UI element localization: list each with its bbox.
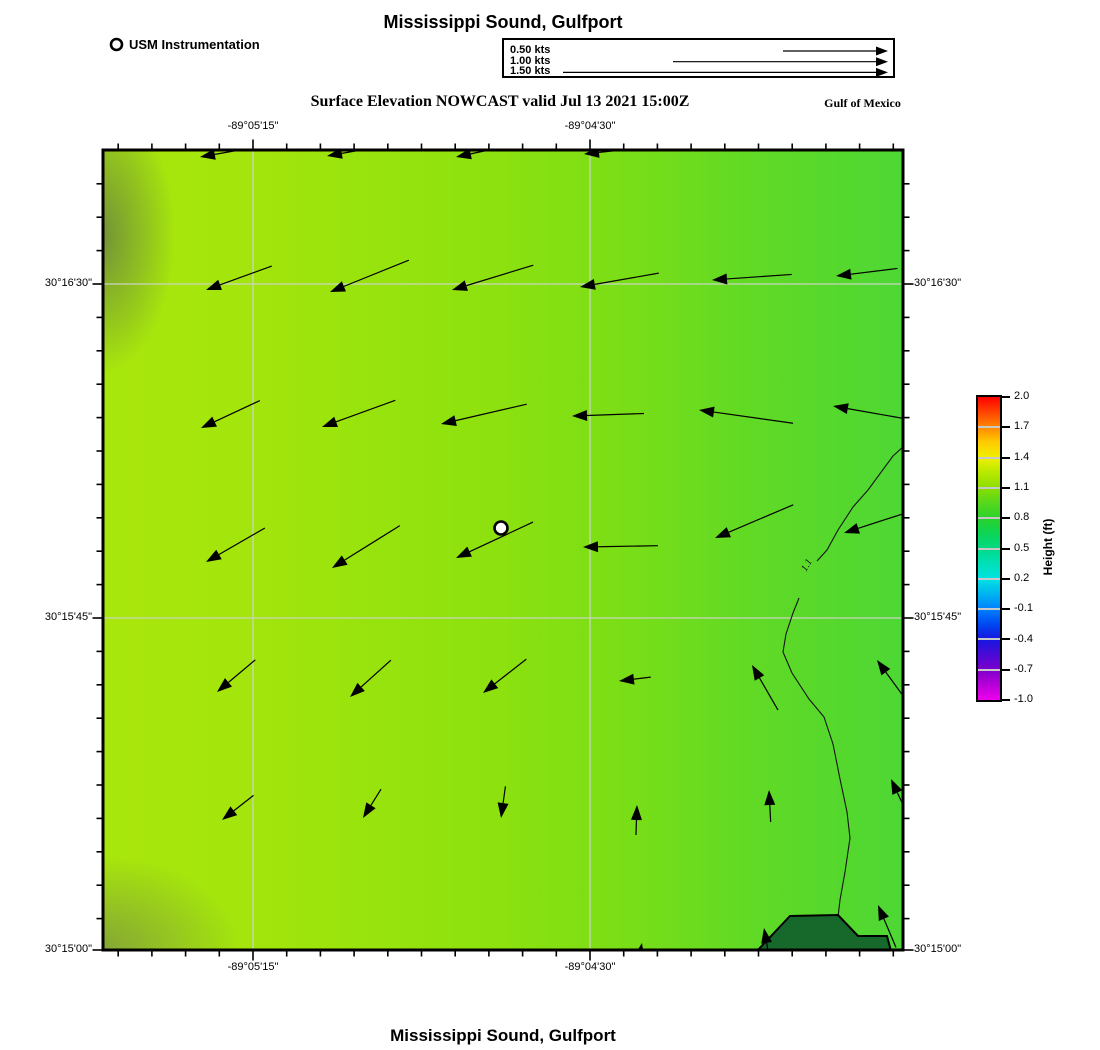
colorbar-label: -0.7 xyxy=(1014,663,1033,675)
colorbar-label: -0.4 xyxy=(1014,633,1033,645)
colorbar-tick xyxy=(1002,578,1010,580)
colorbar-separator xyxy=(978,517,1000,519)
colorbar-tick xyxy=(1002,638,1010,640)
usm-station-marker xyxy=(495,522,508,535)
colorbar-separator xyxy=(978,608,1000,610)
colorbar-tick xyxy=(1002,669,1010,671)
colorbar-separator xyxy=(978,669,1000,671)
colorbar-label: 0.8 xyxy=(1014,511,1029,523)
map-plot: 1.1 xyxy=(0,0,1100,1050)
colorbar-tick xyxy=(1002,608,1010,610)
colorbar-label: 1.1 xyxy=(1014,481,1029,493)
colorbar-label: 0.5 xyxy=(1014,542,1029,554)
colorbar-label: 1.4 xyxy=(1014,451,1029,463)
nowcast-figure: Mississippi Sound, Gulfport USM Instrume… xyxy=(0,0,1100,1050)
colorbar-label: 1.7 xyxy=(1014,420,1029,432)
colorbar-separator xyxy=(978,578,1000,580)
colorbar-tick xyxy=(1002,457,1010,459)
elevation-field xyxy=(103,150,903,950)
colorbar-tick xyxy=(1002,517,1010,519)
colorbar-separator xyxy=(978,426,1000,428)
colorbar-title: Height (ft) xyxy=(1041,502,1055,592)
colorbar-tick xyxy=(1002,396,1010,398)
colorbar-separator xyxy=(978,487,1000,489)
colorbar-separator xyxy=(978,638,1000,640)
colorbar-tick xyxy=(1002,426,1010,428)
colorbar-separator xyxy=(978,548,1000,550)
colorbar-label: 2.0 xyxy=(1014,390,1029,402)
colorbar-ticks xyxy=(1002,395,1012,702)
colorbar xyxy=(976,395,1002,702)
corner-shade-topleft xyxy=(25,95,175,375)
colorbar-tick xyxy=(1002,548,1010,550)
colorbar-label: -0.1 xyxy=(1014,602,1033,614)
colorbar-tick xyxy=(1002,699,1010,701)
colorbar-separator xyxy=(978,457,1000,459)
colorbar-label: 0.2 xyxy=(1014,572,1029,584)
footer-title: Mississippi Sound, Gulfport xyxy=(250,1026,756,1046)
colorbar-tick xyxy=(1002,487,1010,489)
colorbar-label: -1.0 xyxy=(1014,693,1033,705)
map-area: 1.1 xyxy=(0,95,931,1045)
